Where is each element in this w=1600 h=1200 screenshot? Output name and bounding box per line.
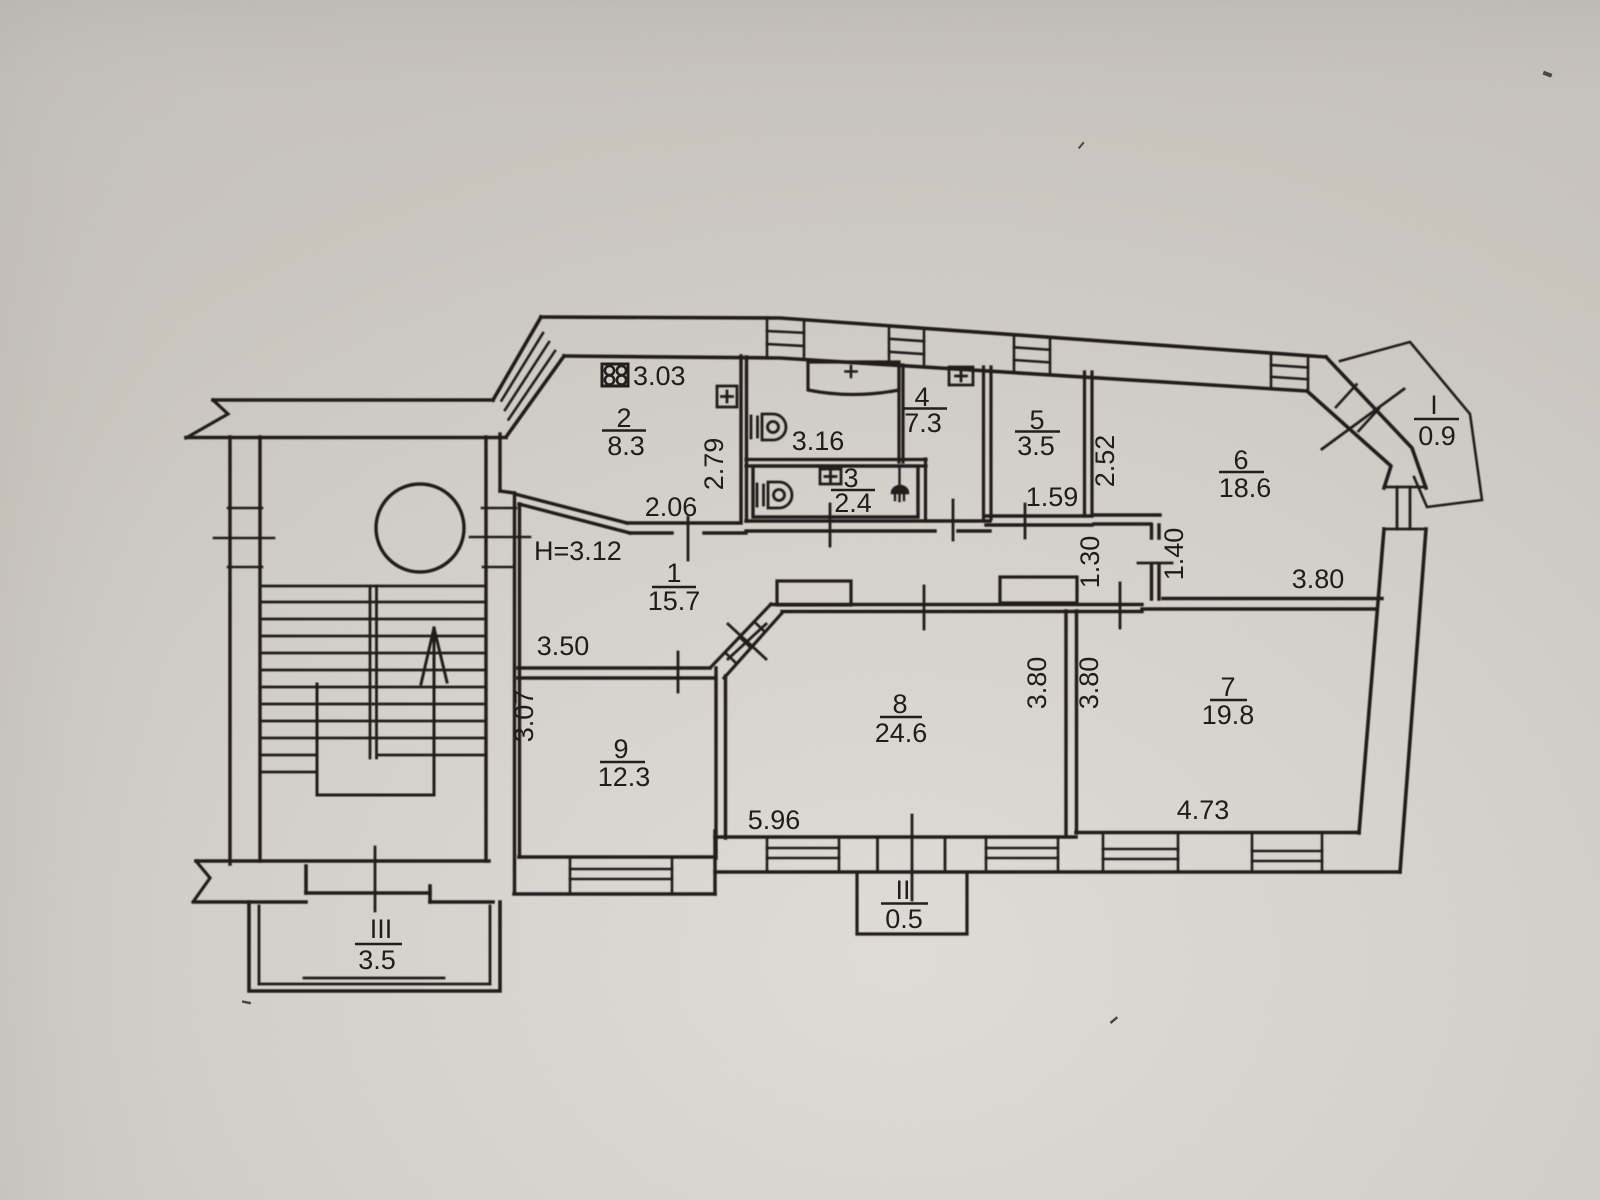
svg-text:3.5: 3.5: [1017, 431, 1055, 461]
svg-text:3.03: 3.03: [633, 361, 686, 391]
svg-text:1.59: 1.59: [1026, 482, 1079, 512]
svg-text:H=3.12: H=3.12: [534, 536, 622, 566]
svg-text:2.4: 2.4: [834, 488, 872, 518]
svg-text:2: 2: [616, 403, 631, 433]
svg-text:3.80: 3.80: [1022, 657, 1052, 710]
svg-text:3.07: 3.07: [509, 690, 539, 743]
svg-text:1: 1: [666, 558, 681, 588]
svg-text:II: II: [895, 875, 910, 905]
svg-text:0.5: 0.5: [885, 904, 923, 934]
svg-text:7.3: 7.3: [904, 408, 942, 438]
svg-text:III: III: [370, 914, 393, 944]
svg-text:15.7: 15.7: [648, 586, 701, 616]
svg-text:2.79: 2.79: [699, 438, 729, 491]
svg-text:2.06: 2.06: [645, 492, 698, 522]
svg-text:8.3: 8.3: [607, 431, 645, 461]
svg-text:9: 9: [613, 734, 628, 764]
svg-text:8: 8: [892, 689, 907, 719]
svg-text:1.40: 1.40: [1159, 528, 1189, 581]
svg-text:3.50: 3.50: [537, 631, 590, 661]
svg-text:19.8: 19.8: [1202, 700, 1255, 730]
svg-text:12.3: 12.3: [598, 762, 651, 792]
svg-text:4.73: 4.73: [1177, 795, 1230, 825]
svg-text:1.30: 1.30: [1075, 536, 1105, 589]
svg-text:5.96: 5.96: [748, 805, 801, 835]
svg-text:2.52: 2.52: [1090, 435, 1120, 488]
svg-text:24.6: 24.6: [875, 718, 928, 748]
svg-text:3.80: 3.80: [1074, 657, 1104, 710]
svg-text:18.6: 18.6: [1219, 473, 1272, 503]
svg-text:3.16: 3.16: [792, 426, 845, 456]
svg-text:3.80: 3.80: [1292, 564, 1345, 594]
svg-text:6: 6: [1233, 445, 1248, 475]
svg-text:7: 7: [1220, 672, 1235, 702]
svg-text:I: I: [1430, 390, 1438, 420]
svg-text:0.9: 0.9: [1418, 421, 1456, 451]
svg-text:3.5: 3.5: [358, 945, 396, 975]
